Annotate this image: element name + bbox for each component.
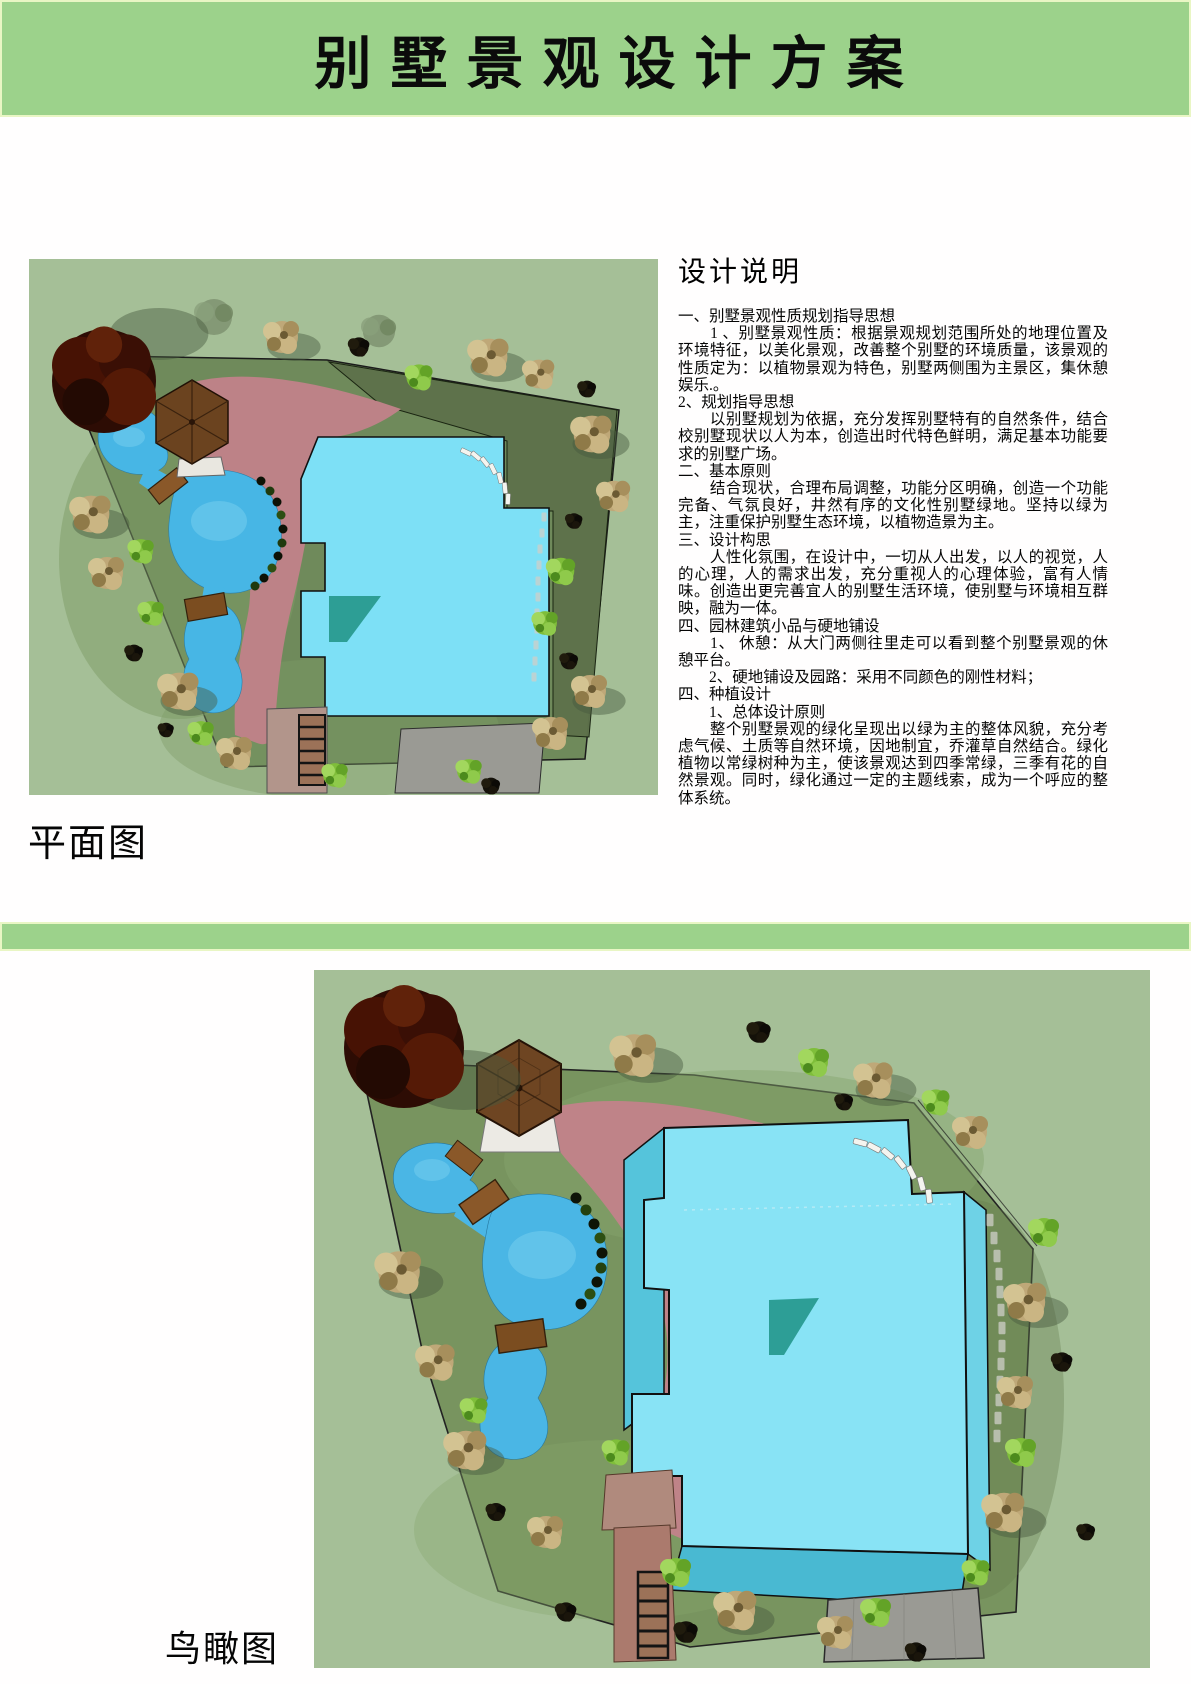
bird-eye-label: 鸟瞰图 [165,1620,279,1672]
design-notes-paragraph: 四、种植设计 [678,686,1108,703]
design-notes-paragraph: 人性化氛围，在设计中，一切从人出发，以人的视觉，人的心理，人的需求出发，充分重视… [678,549,1108,618]
design-notes-paragraph: 三、设计构思 [678,532,1108,549]
page-title: 别墅景观设计方案 [269,18,923,100]
plan-pergola-steps [299,715,325,785]
design-notes-paragraph: 整个别墅景观的绿化呈现出以绿为主的整体风貌，充分考虑气候、土质等自然环境，因地制… [678,721,1108,807]
design-notes-paragraph: 1、 休憩：从大门两侧往里走可以看到整个别墅景观的休憩平台。 [678,635,1108,669]
bird-maroon-tree [344,985,464,1108]
design-notes: 设计说明 一、别墅景观性质规划指导思想 1 、别墅景观性质：根据景观规划范围所处… [678,250,1108,807]
design-notes-paragraph: 以别墅规划为依据，充分发挥别墅特有的自然条件，结合校别墅现状以人为本，创造出时代… [678,411,1108,463]
section-divider-bar [0,922,1191,951]
design-notes-paragraph: 二、基本原则 [678,463,1108,480]
bird-terrace-upper [602,1470,676,1530]
title-banner: 别墅景观设计方案 [0,0,1191,117]
design-notes-paragraph: 2、规划指导思想 [678,394,1108,411]
design-notes-paragraph: 2、硬地铺设及园路：采用不同颜色的刚性材料； [678,669,1108,686]
design-notes-paragraph: 四、园林建筑小品与硬地铺设 [678,618,1108,635]
design-notes-paragraph: 1、总体设计原则 [678,704,1108,721]
maroon-tree [52,326,156,433]
bird-pergola [638,1572,668,1658]
design-notes-paragraph: 1 、别墅景观性质：根据景观规划范围所处的地理位置及环境特征，以美化景观，改善整… [678,325,1108,394]
design-notes-paragraph: 一、别墅景观性质规划指导思想 [678,308,1108,325]
presentation-board: 别墅景观设计方案 [0,0,1191,1684]
plan-view-figure [29,259,658,795]
design-notes-heading: 设计说明 [678,250,1108,290]
design-notes-body: 一、别墅景观性质规划指导思想 1 、别墅景观性质：根据景观规划范围所处的地理位置… [678,308,1108,807]
plan-view-image [29,259,658,795]
bird-eye-image [314,970,1150,1668]
plan-view-label: 平面图 [28,812,148,867]
design-notes-paragraph: 结合现状，合理布局调整，功能分区明确，创造一个功能完备、气氛良好，井然有序的文化… [678,480,1108,532]
bird-eye-figure [314,970,1150,1668]
